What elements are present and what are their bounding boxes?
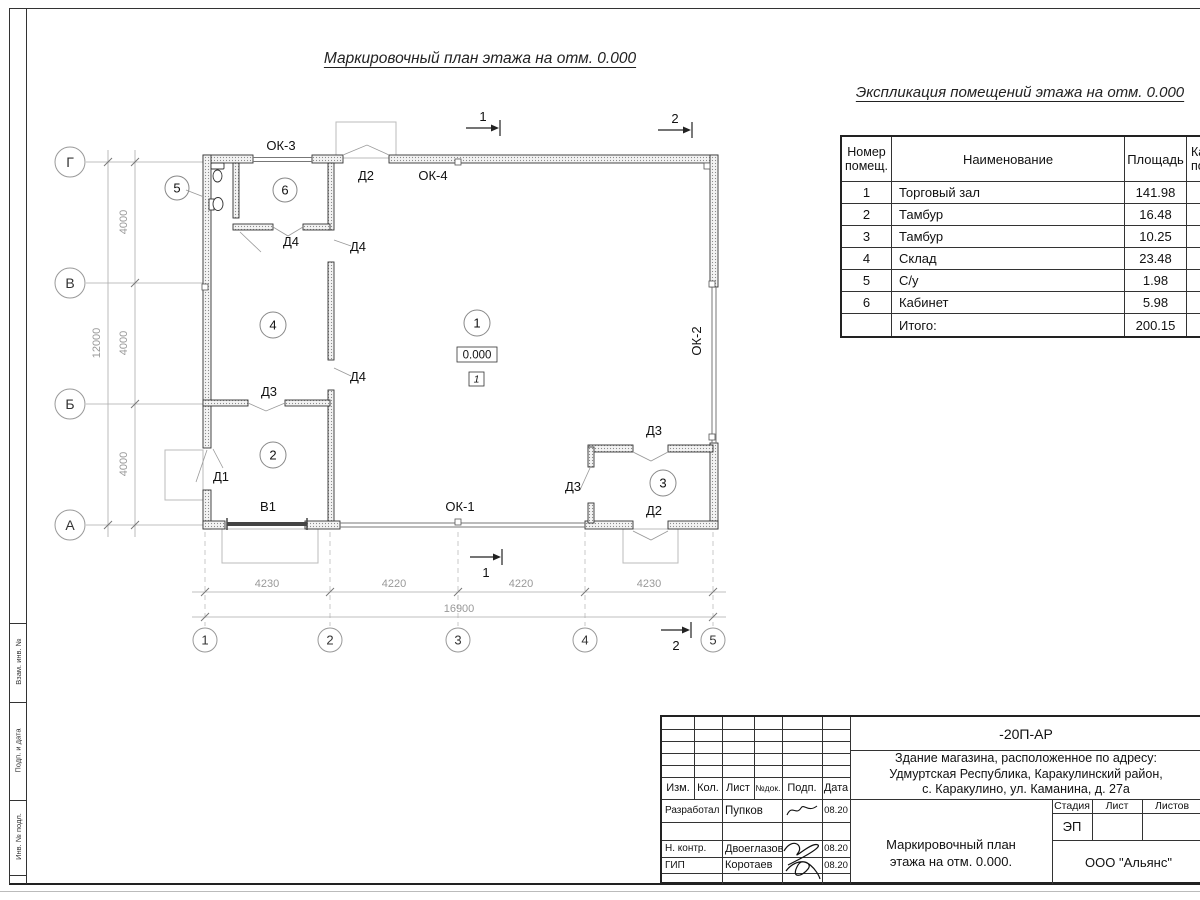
section-top-1: 1 (479, 109, 486, 124)
row-name: Торговый зал (892, 182, 1125, 203)
row-num: 5 (842, 270, 892, 291)
floor-type-mark: 1 (469, 372, 484, 386)
col-header-name: Наименование (892, 137, 1125, 181)
section-bottom-1: 1 (482, 565, 489, 580)
label-ok4: ОК-4 (418, 168, 447, 183)
row-name: Кабинет (892, 292, 1125, 313)
axis-1: 1 (201, 633, 208, 648)
section-bottom-2: 2 (672, 638, 679, 653)
room-2: 2 (269, 448, 276, 463)
row-area: 1.98 (1125, 270, 1187, 291)
sink-icon (209, 198, 223, 211)
row-num: 1 (842, 182, 892, 203)
axis-lines (86, 150, 726, 626)
label-d4-a: Д4 (283, 234, 299, 249)
room-1: 1 (473, 316, 480, 331)
label-d3-r3-left: Д3 (565, 479, 581, 494)
room-4: 4 (269, 318, 276, 333)
title-block: -20П-АР Здание магазина, расположенное п… (660, 715, 1200, 884)
floor-plan-svg: 4000 4000 4000 12000 4230 4220 4220 4230… (0, 100, 780, 680)
role-ncontrol: Н. контр. (665, 840, 721, 857)
row-area: 5.98 (1125, 292, 1187, 313)
dim-4220-a: 4220 (382, 578, 406, 590)
storefront-v1 (227, 522, 307, 526)
elevation-mark: 0.000 (457, 347, 497, 362)
stage-value: ЭП (1052, 813, 1092, 840)
total-area: 200.15 (1125, 314, 1187, 336)
role-developer: Разработал (665, 799, 721, 822)
col-header-area: Площадь (1125, 137, 1187, 181)
jamb-marks (202, 159, 715, 525)
section-marks: 1 2 1 2 (466, 109, 692, 653)
dim-4230-a: 4230 (255, 578, 279, 590)
axis-v: В (65, 275, 74, 291)
axis-3: 3 (454, 633, 461, 648)
row-num: 2 (842, 204, 892, 225)
drawing-sheet: Взам. инв. № Подп. и дата Инв. № подл. М… (0, 0, 1200, 900)
date-gip: 08.20 (822, 857, 850, 873)
frame-top-line (9, 8, 1200, 9)
axis-a: А (65, 517, 75, 533)
label-d3-r3-top: Д3 (646, 423, 662, 438)
col-header-number: Номерпомещ. (842, 137, 892, 181)
table-row: 5 С/у 1.98 (842, 270, 1200, 292)
svg-text:1: 1 (474, 374, 480, 386)
row-num: 3 (842, 226, 892, 247)
col-header-category: Капо (1187, 137, 1200, 181)
row-name: Тамбур (892, 204, 1125, 225)
table-row: 4 Склад 23.48 (842, 248, 1200, 270)
label-ok3: ОК-3 (266, 138, 295, 153)
row-name: Склад (892, 248, 1125, 269)
header-kol: Кол. (694, 777, 722, 799)
doc-number: -20П-АР (850, 721, 1200, 747)
header-podp: Подп. (782, 777, 822, 799)
company-name: ООО "Альянс" (1052, 840, 1200, 884)
room-5: 5 (173, 181, 180, 196)
windows (227, 158, 716, 531)
axis-5: 5 (709, 633, 716, 648)
row-area: 23.48 (1125, 248, 1187, 269)
row-num: 4 (842, 248, 892, 269)
sheet-header: Лист (1092, 799, 1142, 813)
walls (203, 155, 718, 529)
sheet-edge-line (0, 891, 1200, 892)
door-leaders (186, 145, 668, 540)
axis-b: Б (65, 396, 74, 412)
section-top-2: 2 (671, 111, 678, 126)
label-d1: Д1 (213, 469, 229, 484)
explication-table: Номерпомещ. Наименование Площадь Капо 1 … (840, 135, 1200, 338)
axis-2: 2 (326, 633, 333, 648)
dim-4000-b: 4000 (118, 331, 130, 355)
row-name: С/у (892, 270, 1125, 291)
header-izm: Изм. (662, 777, 694, 799)
dim-4230-b: 4230 (637, 578, 661, 590)
name-gip: Коротаев (725, 857, 783, 873)
label-ok1: ОК-1 (445, 499, 474, 514)
room-3: 3 (659, 476, 666, 491)
table-row: 1 Торговый зал 141.98 (842, 182, 1200, 204)
dim-4000-c: 4000 (118, 452, 130, 476)
table-row: 6 Кабинет 5.98 (842, 292, 1200, 314)
toilet-icon (211, 163, 224, 182)
date-ncontrol: 08.20 (822, 840, 850, 857)
total-label: Итого: (892, 314, 1125, 336)
dim-4000-a: 4000 (118, 210, 130, 234)
drawing-title: Маркировочный план этажа на отм. 0.000. (850, 799, 1052, 884)
row-area: 10.25 (1125, 226, 1187, 247)
header-data: Дата (822, 777, 850, 799)
signature-developer (784, 801, 820, 820)
sheets-header: Листов (1142, 799, 1200, 813)
role-gip: ГИП (665, 857, 721, 873)
dim-4220-b: 4220 (509, 578, 533, 590)
room-6: 6 (281, 183, 288, 198)
dim-12000: 12000 (91, 328, 103, 359)
dimension-ticks (104, 158, 717, 621)
row-area: 141.98 (1125, 182, 1187, 203)
label-d2-bot: Д2 (646, 503, 662, 518)
label-v1: В1 (260, 499, 276, 514)
label-d3-b: Д3 (261, 384, 277, 399)
name-ncontrol: Двоеглазов (725, 840, 783, 857)
explication-header-row: Номерпомещ. Наименование Площадь Капо (842, 137, 1200, 182)
dim-16900: 16900 (444, 603, 475, 615)
axis-markers: Г В Б А 1 2 3 4 5 (55, 147, 725, 652)
table-total-row: Итого: 200.15 (842, 314, 1200, 336)
axis-g: Г (66, 154, 74, 170)
strip-label-podp: Подп. и дата (14, 702, 23, 800)
plan-title: Маркировочный план этажа на отм. 0.000 (285, 50, 675, 68)
axis-4: 4 (581, 633, 588, 648)
explication-title: Экспликация помещений этажа на отм. 0.00… (845, 84, 1195, 101)
row-name: Тамбур (892, 226, 1125, 247)
header-ndok: №док. (754, 777, 782, 799)
project-address: Здание магазина, расположенное по адресу… (850, 750, 1200, 799)
label-ok2: ОК-2 (689, 326, 704, 355)
label-d2-top: Д2 (358, 168, 374, 183)
label-d4-b: Д4 (350, 239, 366, 254)
signature-gip (778, 835, 824, 883)
dimension-texts: 4000 4000 4000 12000 4230 4220 4220 4230… (91, 210, 661, 615)
svg-text:0.000: 0.000 (463, 350, 492, 362)
label-d4-c: Д4 (350, 369, 366, 384)
row-num: 6 (842, 292, 892, 313)
porch-outlines (165, 122, 678, 563)
header-list: Лист (722, 777, 754, 799)
name-developer: Пупков (725, 799, 781, 822)
table-row: 2 Тамбур 16.48 (842, 204, 1200, 226)
strip-label-inv: Инв. № подл. (14, 799, 23, 874)
date-developer: 08.20 (822, 799, 850, 822)
row-area: 16.48 (1125, 204, 1187, 225)
table-row: 3 Тамбур 10.25 (842, 226, 1200, 248)
stage-header: Стадия (1052, 799, 1092, 813)
